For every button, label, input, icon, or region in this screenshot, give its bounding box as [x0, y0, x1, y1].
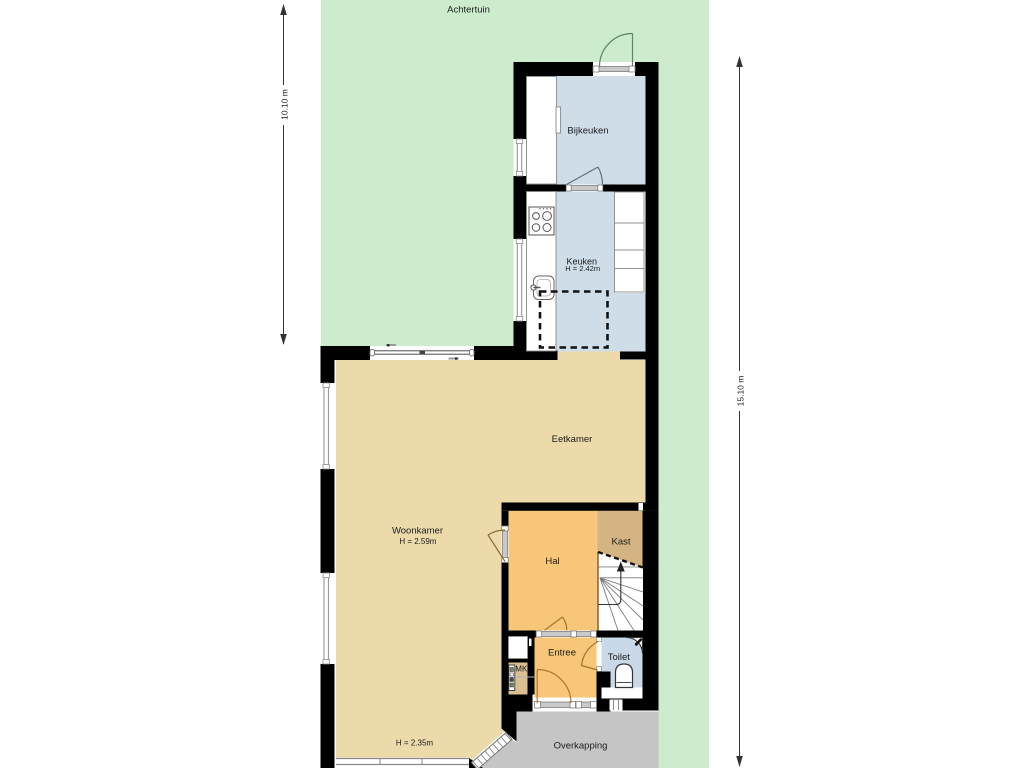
svg-text:15.10 m: 15.10 m	[736, 376, 746, 407]
svg-text:H = 2.35m: H = 2.35m	[396, 739, 433, 748]
svg-text:Eetkamer: Eetkamer	[552, 434, 593, 445]
svg-text:Bijkeuken: Bijkeuken	[567, 126, 608, 137]
svg-text:Woonkamer: Woonkamer	[392, 526, 443, 537]
svg-text:H = 2.59m: H = 2.59m	[399, 537, 436, 546]
svg-text:Kast: Kast	[611, 537, 630, 548]
svg-text:Achtertuin: Achtertuin	[447, 5, 490, 16]
svg-text:H = 2.42m: H = 2.42m	[565, 264, 600, 273]
svg-text:Entree: Entree	[548, 648, 576, 659]
svg-text:Hal: Hal	[545, 556, 559, 567]
svg-text:10.10 m: 10.10 m	[280, 89, 290, 120]
svg-text:Overkapping: Overkapping	[554, 741, 608, 752]
svg-text:MK: MK	[515, 665, 528, 674]
svg-text:Toilet: Toilet	[608, 652, 631, 663]
